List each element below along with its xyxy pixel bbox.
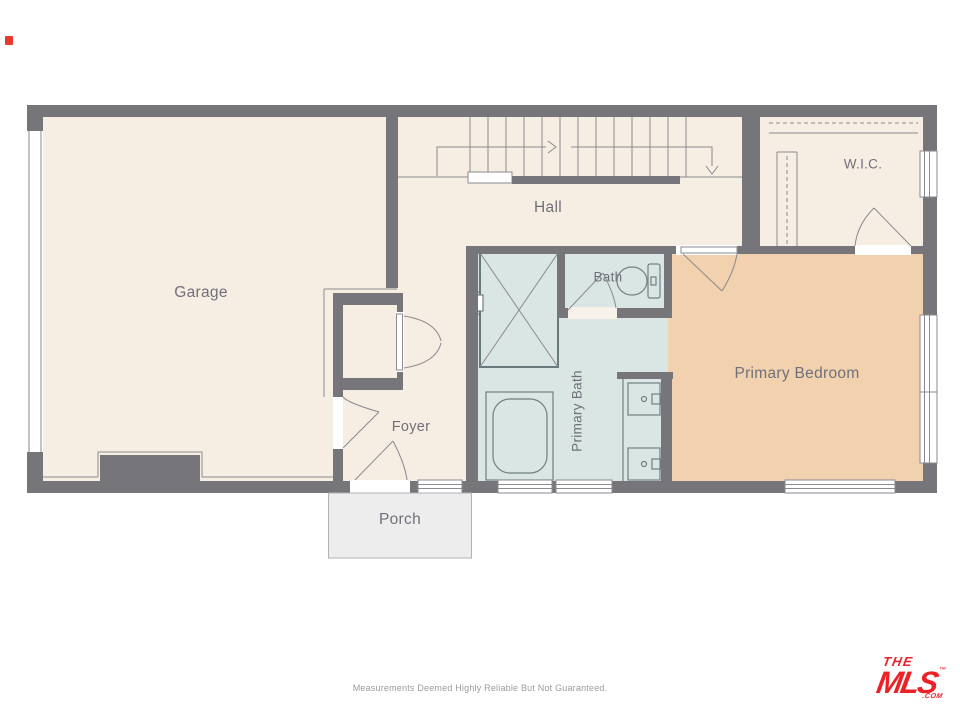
- room-label-primary-bath: Primary Bath: [570, 370, 585, 452]
- room-label-garage: Garage: [174, 284, 228, 302]
- room-label-hall: Hall: [534, 199, 562, 217]
- window-bedroom-east-1: [920, 315, 937, 392]
- red-marker: [5, 36, 13, 45]
- mls-logo: THE MLS™ .COM: [874, 655, 956, 700]
- garage-door: [27, 131, 43, 452]
- window-primary-bath-1: [498, 480, 552, 493]
- window-foyer: [418, 480, 462, 493]
- window-wic-east: [920, 151, 937, 197]
- room-label-wic: W.I.C.: [844, 157, 883, 172]
- floorplan-drawing: [0, 0, 960, 720]
- room-label-porch: Porch: [379, 511, 421, 529]
- window-primary-bath-2: [556, 480, 612, 493]
- floorplan-page: Garage Hall W.I.C. Bath Primary Bath Pri…: [0, 0, 960, 720]
- window-bedroom-east-2: [920, 392, 937, 463]
- room-label-foyer: Foyer: [392, 419, 431, 435]
- window-bedroom-south: [785, 480, 895, 493]
- room-label-primary-bedroom: Primary Bedroom: [734, 365, 859, 383]
- room-label-bath: Bath: [594, 270, 623, 285]
- mls-logo-tm: ™: [938, 667, 946, 674]
- disclaimer-text: Measurements Deemed Highly Reliable But …: [0, 683, 960, 693]
